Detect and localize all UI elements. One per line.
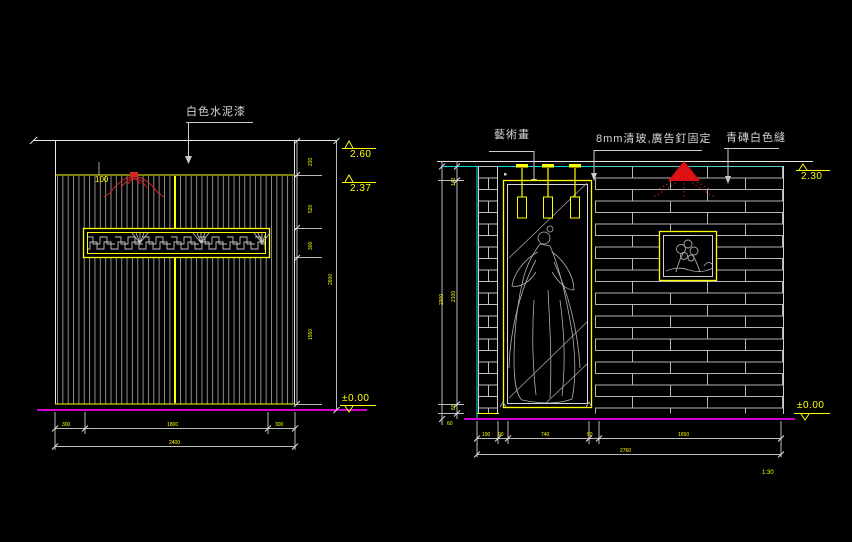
level-237: 2.37 <box>350 184 371 194</box>
lamp-offset-dim: 100 <box>95 176 108 184</box>
level-symbols-right <box>794 164 830 420</box>
dim-text: 90 <box>587 433 593 438</box>
lattice-panel <box>84 229 271 258</box>
dim-text-total: 2760 <box>620 449 631 454</box>
dim-text: 2100 <box>452 291 457 302</box>
dim-text: 90 <box>498 433 504 438</box>
leader-arrow-icon <box>185 156 192 164</box>
brick-label: 青磚白色縫 <box>726 133 786 144</box>
dim-text: 1800 <box>167 423 178 428</box>
level-000-left: ±0.00 <box>342 394 369 404</box>
brick-pier <box>477 166 499 419</box>
level-230: 2.30 <box>801 172 822 182</box>
left-elevation-wall <box>30 122 376 450</box>
dim-text-total: 2600 <box>329 274 334 285</box>
dim-text: 1650 <box>678 433 689 438</box>
dim-text: 60 <box>452 404 457 410</box>
scale-note: 1:30 <box>762 470 774 476</box>
dim-text-total: 2300 <box>440 294 445 305</box>
dim-text: 300 <box>275 423 283 428</box>
framed-picture <box>660 232 717 281</box>
dim-text: 740 <box>541 433 549 438</box>
art-label: 藝術畫 <box>494 130 530 141</box>
dim-text: 1550 <box>309 329 314 340</box>
dim-text: 140 <box>452 178 457 186</box>
dim-text: 520 <box>309 205 314 213</box>
dim-text: 230 <box>309 158 314 166</box>
dim-text-total: 2400 <box>169 441 180 446</box>
dim-text: 300 <box>62 423 70 428</box>
dim-text: 190 <box>482 433 490 438</box>
dim-text: 60 <box>447 422 453 427</box>
level-000-right: ±0.00 <box>797 401 824 411</box>
finish-label: 白色水泥漆 <box>186 107 246 118</box>
dim-text: 300 <box>309 242 314 250</box>
brick-wall <box>595 166 784 414</box>
glass-label: 8mm清玻,廣告釘固定 <box>596 134 712 145</box>
cad-canvas[interactable]: 白色水泥漆 100 2.60 2.37 ±0.00 300 1800 300 2… <box>0 0 852 542</box>
cad-linework <box>0 0 852 542</box>
level-260: 2.60 <box>350 150 371 160</box>
level-symbols-left <box>340 141 376 412</box>
right-elevation-wall <box>437 148 830 458</box>
